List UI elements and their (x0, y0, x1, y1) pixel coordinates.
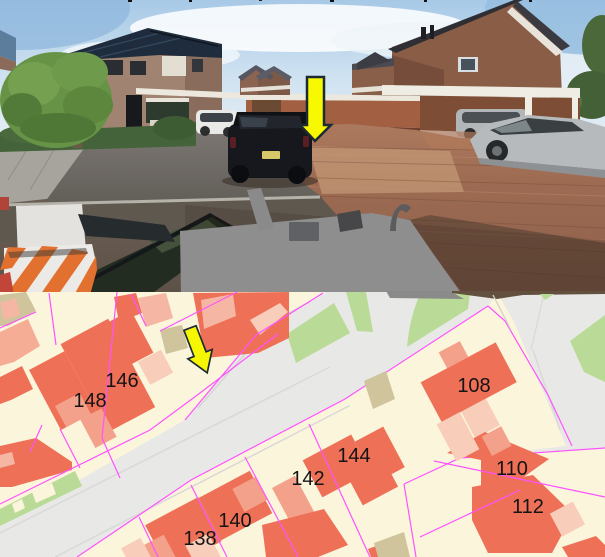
svg-text:140: 140 (218, 510, 251, 532)
svg-text:146: 146 (105, 370, 138, 392)
svg-text:110: 110 (496, 458, 528, 480)
svg-text:142: 142 (291, 468, 324, 490)
svg-text:138: 138 (183, 528, 216, 550)
svg-text:144: 144 (337, 445, 370, 467)
svg-text:148: 148 (73, 390, 106, 412)
svg-text:112: 112 (512, 496, 544, 518)
svg-text:108: 108 (457, 375, 490, 397)
